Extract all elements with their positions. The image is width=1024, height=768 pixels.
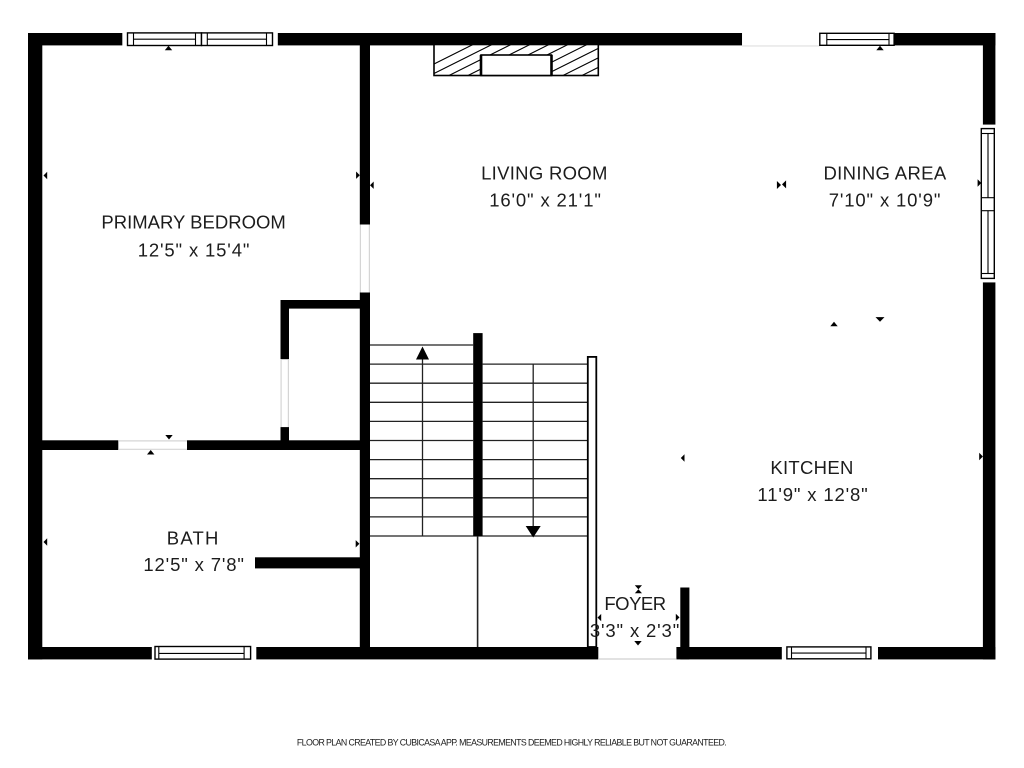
svg-text:12'5" x 15'4": 12'5" x 15'4" — [138, 240, 251, 261]
svg-text:PRIMARY BEDROOM: PRIMARY BEDROOM — [101, 212, 285, 233]
svg-text:LIVING ROOM: LIVING ROOM — [481, 162, 608, 183]
svg-text:16'0" x 21'1": 16'0" x 21'1" — [489, 189, 602, 210]
svg-text:FOYER: FOYER — [604, 593, 665, 614]
svg-text:KITCHEN: KITCHEN — [770, 457, 853, 478]
svg-text:3'3" x 2'3": 3'3" x 2'3" — [590, 620, 680, 641]
svg-text:DINING AREA: DINING AREA — [823, 163, 946, 184]
svg-text:11'9" x 12'8": 11'9" x 12'8" — [757, 484, 868, 505]
svg-text:FLOOR PLAN CREATED BY CUBICASA: FLOOR PLAN CREATED BY CUBICASA APP. MEAS… — [297, 737, 726, 747]
svg-text:7'10" x 10'9": 7'10" x 10'9" — [829, 189, 942, 210]
svg-text:12'5" x 7'8": 12'5" x 7'8" — [143, 554, 244, 575]
svg-text:BATH: BATH — [167, 527, 220, 548]
